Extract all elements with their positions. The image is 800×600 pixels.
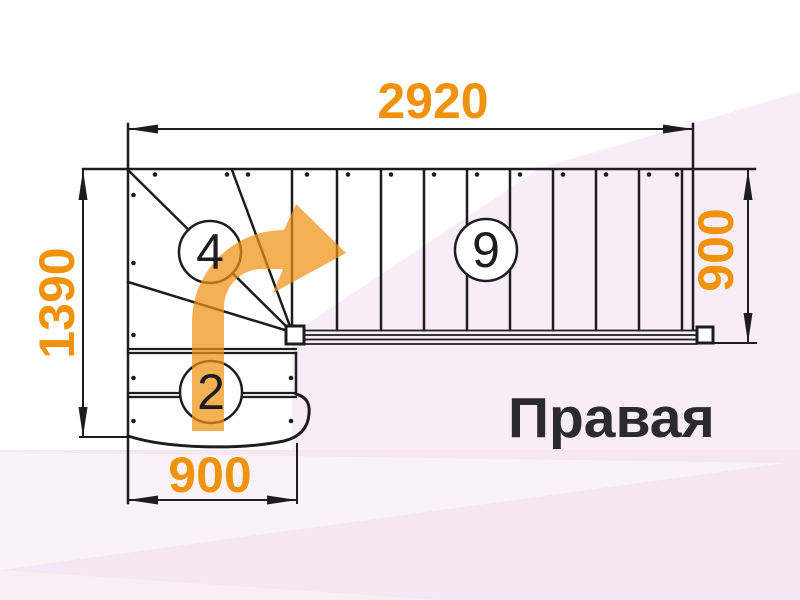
dimension-left-run-value: 1390 [29, 247, 85, 358]
stair-plan-page: 9 4 2 2920 1390 900 900 Правая [0, 0, 800, 600]
dimension-flight-width-value: 900 [688, 208, 744, 291]
stair-plan-diagram: 9 4 2 2920 1390 900 900 Правая [0, 0, 800, 600]
dimension-bottom-width-value: 900 [168, 447, 251, 503]
step-count-bottom-flight: 2 [197, 364, 225, 420]
step-count-main-flight: 9 [472, 222, 500, 278]
orientation-label: Правая [508, 386, 715, 450]
newel-post-right [697, 327, 713, 343]
step-count-winder: 4 [196, 224, 224, 280]
newel-post-left [286, 326, 304, 344]
step-count-badge-main-flight: 9 [455, 219, 517, 281]
dimension-total-length-value: 2920 [377, 73, 488, 129]
